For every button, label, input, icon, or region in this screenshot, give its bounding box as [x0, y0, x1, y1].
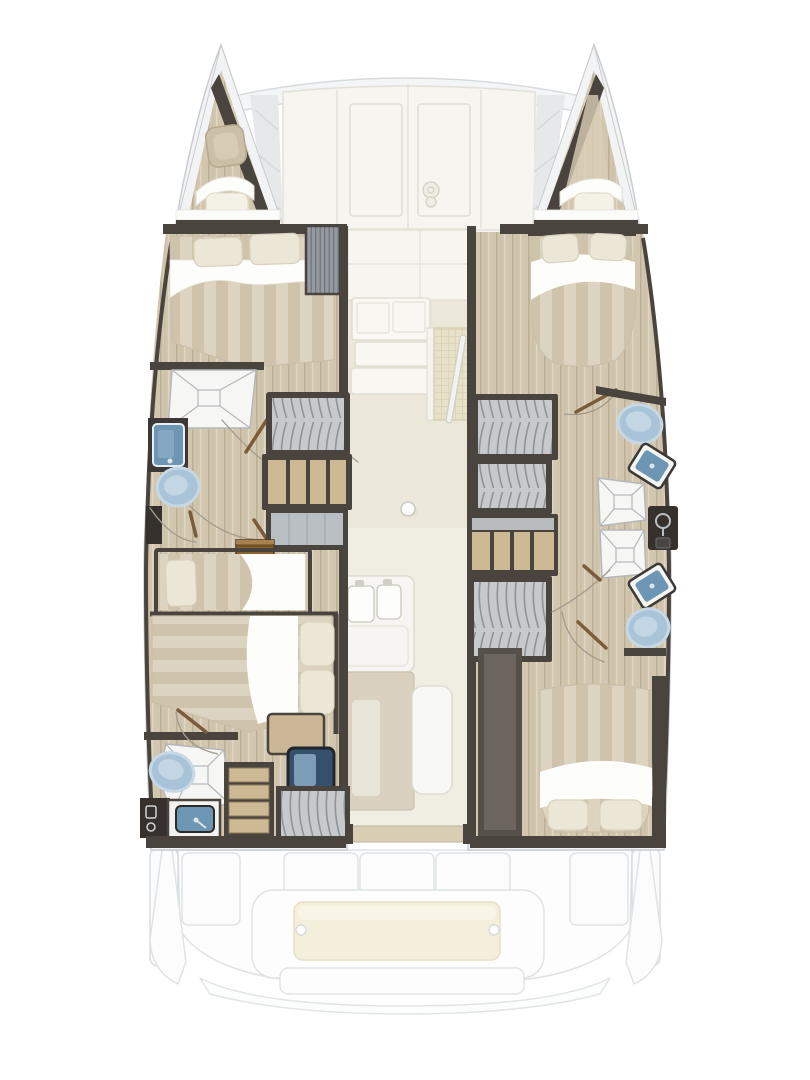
starboard-hull	[467, 224, 678, 848]
port-mid-sink	[148, 418, 188, 472]
galley-island	[338, 576, 414, 672]
bench-fitting-left	[296, 925, 306, 935]
cockpit-side-console-port	[182, 853, 240, 925]
port-aft-pillow-1	[300, 622, 334, 666]
single-berth-pillow	[165, 559, 197, 606]
bench-fitting-right	[489, 925, 499, 935]
sink-bowl-left	[348, 586, 374, 622]
port-forward-cabin	[170, 226, 340, 368]
saloon-aft-sill	[345, 824, 471, 844]
saloon-tall-cabinet	[340, 672, 414, 810]
port-head-side-cabinet	[146, 506, 162, 544]
port-head-bulkhead	[150, 362, 264, 370]
island-faucet-right	[383, 579, 392, 586]
floor-plan-stage	[0, 0, 810, 1080]
port-aft-hanging-locker	[276, 786, 350, 842]
port-aft-bed-sheet	[247, 616, 298, 724]
port-aft-seat-blue	[288, 748, 334, 792]
windlass-icon	[423, 182, 439, 207]
galley-counter	[351, 298, 431, 394]
cockpit-ghost	[150, 848, 662, 1014]
island-faucet-left	[355, 580, 364, 587]
transom-step-1	[280, 968, 524, 994]
saloon	[338, 228, 472, 844]
stbd-aft-pillow-2	[600, 800, 642, 830]
grid-hatch	[427, 328, 472, 420]
sink-bowl-right	[377, 585, 401, 619]
stbd-aft-bulkhead	[624, 648, 666, 656]
stbd-hanging-locker-1	[472, 394, 558, 460]
port-shelf-unit	[262, 454, 352, 510]
port-gray-cabinet	[266, 508, 348, 550]
starboard-lockers	[468, 394, 558, 662]
stbd-fwd-pillow-1	[541, 234, 579, 263]
port-aft-single-berth	[156, 550, 310, 614]
stbd-aft-column-inner	[484, 654, 516, 830]
stbd-hanging-locker-2	[472, 458, 552, 514]
stbd-aft-pillow-1	[548, 800, 588, 830]
port-aft-pillow-2	[300, 670, 334, 714]
stbd-fwd-shower	[598, 478, 646, 526]
port-hull	[140, 224, 358, 848]
port-hanging-locker	[266, 392, 350, 456]
foredeck-panel-area	[283, 86, 535, 230]
starboard-stern-band	[470, 836, 666, 848]
port-drawer-stack	[224, 762, 274, 840]
stbd-head-panel	[648, 506, 678, 550]
port-stern-band	[146, 836, 346, 848]
saloon-forward-cabinets	[348, 230, 468, 300]
port-aft-head-cabinet	[140, 798, 170, 838]
cockpit-side-console-starboard	[570, 853, 628, 925]
starboard-bow-white-band	[534, 210, 638, 220]
stbd-shelf-unit	[468, 514, 558, 576]
port-wardrobes	[262, 392, 352, 550]
port-forepeak-hatch	[204, 124, 247, 169]
catamaran-floor-plan	[0, 0, 810, 1080]
saloon-bench	[412, 686, 452, 794]
port-aft-head-bulkhead	[144, 732, 238, 740]
stbd-aft-bed-frame	[652, 676, 666, 836]
stbd-aft-shower	[600, 530, 646, 578]
port-louvered-locker	[306, 226, 340, 294]
port-bow-white-band	[176, 210, 280, 220]
stbd-fwd-pillow-2	[589, 233, 626, 261]
port-aft-sink	[168, 800, 220, 838]
aft-bench-highlight	[298, 906, 496, 920]
